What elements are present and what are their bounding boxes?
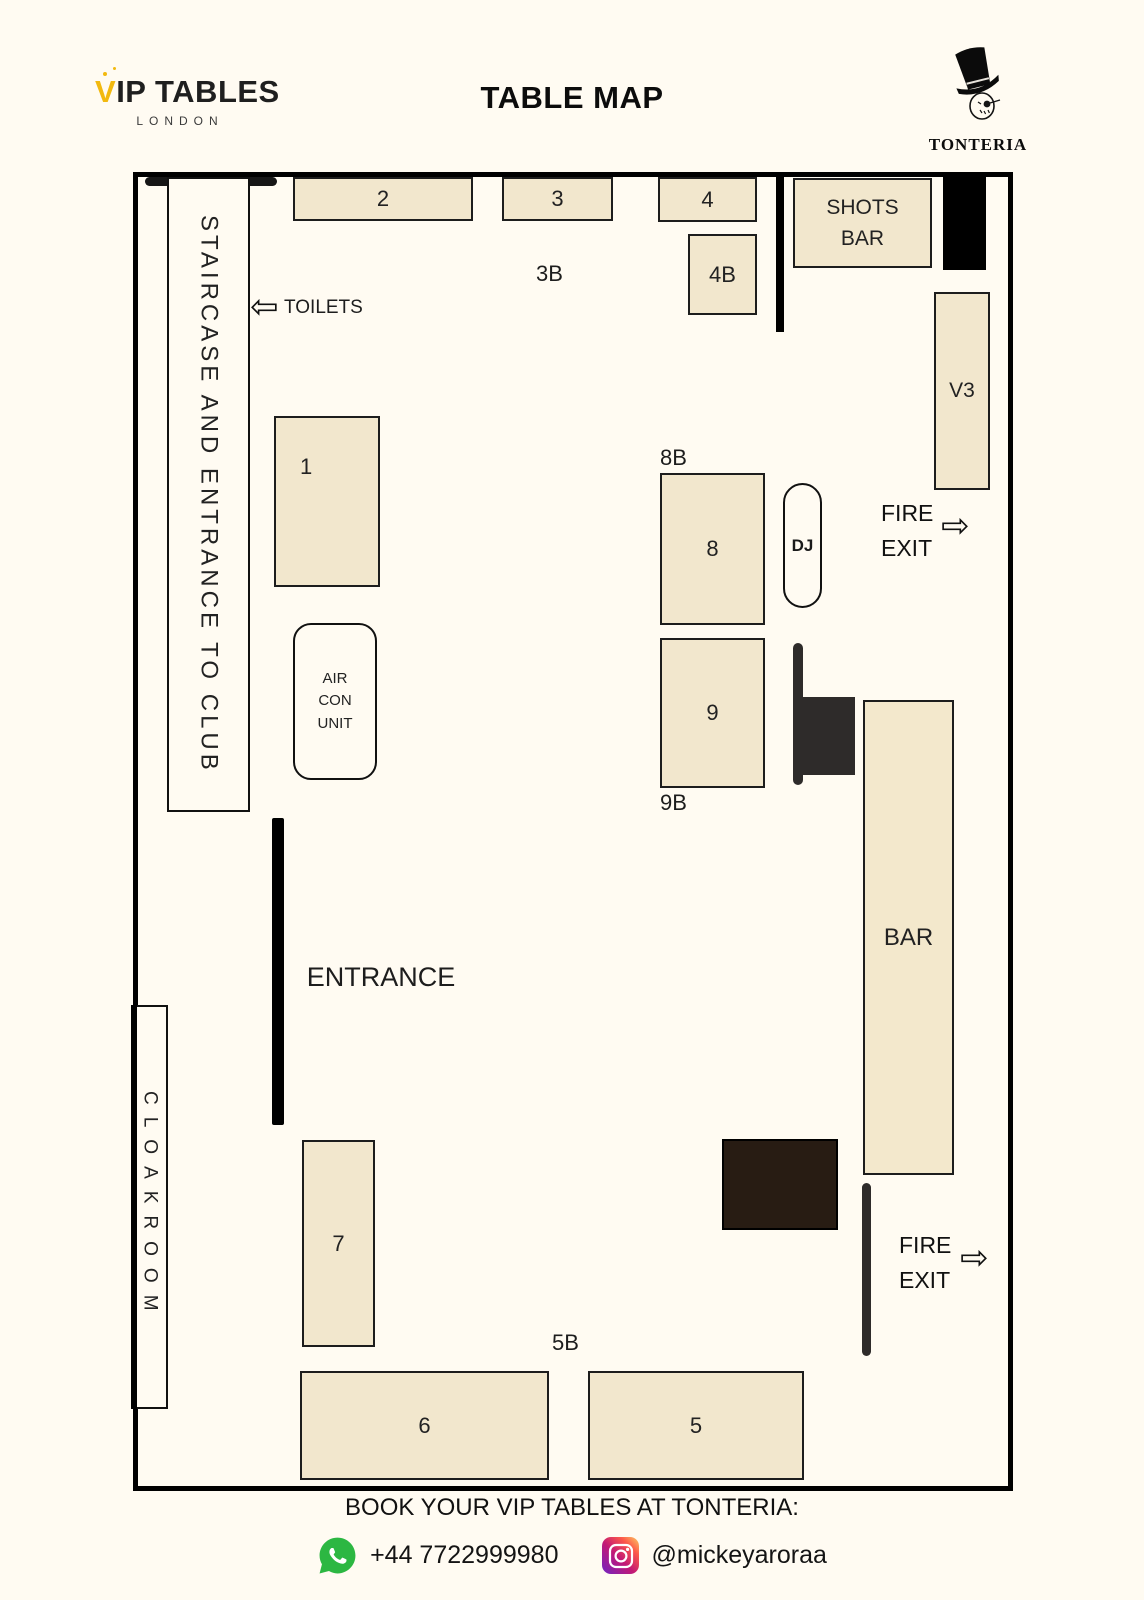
fire-exit-line2: EXIT xyxy=(899,1263,951,1298)
table-4b: 4B xyxy=(688,234,757,315)
entrance-wall xyxy=(272,818,284,1125)
toilets-label: TOILETS xyxy=(284,297,363,319)
instagram-icon[interactable] xyxy=(602,1537,639,1574)
table-7: 7 xyxy=(302,1140,375,1347)
table-1: 1 xyxy=(274,416,380,587)
contact-row: +44 7722999980 @mickeyaroraa xyxy=(0,1535,1144,1576)
fire-exit-arrow-icon: ⇨ xyxy=(960,1241,989,1275)
fire-exit-line1: FIRE xyxy=(899,1228,951,1263)
sparkle-icon xyxy=(113,67,116,70)
booth-label-9b: 9B xyxy=(660,790,687,816)
table-3: 3 xyxy=(502,177,613,221)
cloakroom-label: CLOAKROOM xyxy=(133,1007,166,1407)
speaker-block xyxy=(793,697,855,775)
wall-segment-top xyxy=(776,177,784,332)
toilets-arrow-icon: ⇦ xyxy=(250,290,279,324)
fire-exit-label-bottom: FIRE EXIT xyxy=(899,1228,951,1298)
table-v3: V3 xyxy=(934,292,990,490)
entrance-label: ENTRANCE xyxy=(301,962,461,993)
booth-label-8b: 8B xyxy=(660,445,687,471)
brand-city: LONDON xyxy=(95,114,265,128)
fire-exit-arrow-icon: ⇨ xyxy=(941,509,970,543)
fire-exit-line1: FIRE xyxy=(881,496,933,531)
wall-segment-left xyxy=(131,1005,137,1409)
table-2: 2 xyxy=(293,177,473,221)
staircase: STAIRCASE AND ENTRANCE TO CLUB xyxy=(167,177,250,812)
table-4: 4 xyxy=(658,177,757,222)
bar: BAR xyxy=(863,700,954,1175)
black-block-top-right xyxy=(943,177,986,270)
dj-booth: DJ xyxy=(783,483,822,608)
aircon-line1: AIR xyxy=(322,668,347,691)
table-9: 9 xyxy=(660,638,765,788)
floor-plan: STAIRCASE AND ENTRANCE TO CLUB ⇦ TOILETS… xyxy=(133,172,1013,1491)
table-5: 5 xyxy=(588,1371,804,1480)
fire-exit-wall xyxy=(862,1183,871,1356)
aircon-unit: AIR CON UNIT xyxy=(293,623,377,780)
skull-tophat-icon xyxy=(942,44,1014,132)
booth-label-3b: 3B xyxy=(536,261,563,287)
aircon-line3: UNIT xyxy=(318,713,353,736)
phone-number[interactable]: +44 7722999980 xyxy=(370,1541,558,1570)
shots-bar-label-line2: BAR xyxy=(841,223,884,255)
venue-logo: TONTERIA xyxy=(918,44,1038,155)
shots-bar: SHOTS BAR xyxy=(793,178,932,268)
booth-label-5b: 5B xyxy=(552,1330,579,1356)
table-8: 8 xyxy=(660,473,765,625)
sparkle-icon xyxy=(103,72,107,76)
fire-exit-line2: EXIT xyxy=(881,531,933,566)
shots-bar-label-line1: SHOTS xyxy=(826,192,898,224)
instagram-handle[interactable]: @mickeyaroraa xyxy=(651,1541,826,1570)
fire-exit-label-top: FIRE EXIT xyxy=(881,496,933,566)
cloakroom: CLOAKROOM xyxy=(131,1005,168,1409)
whatsapp-icon[interactable] xyxy=(317,1535,358,1576)
cta-text: BOOK YOUR VIP TABLES AT TONTERIA: xyxy=(0,1494,1144,1522)
stage-block xyxy=(722,1139,838,1230)
aircon-line2: CON xyxy=(318,690,351,713)
venue-name: TONTERIA xyxy=(918,135,1038,155)
table-6: 6 xyxy=(300,1371,549,1480)
